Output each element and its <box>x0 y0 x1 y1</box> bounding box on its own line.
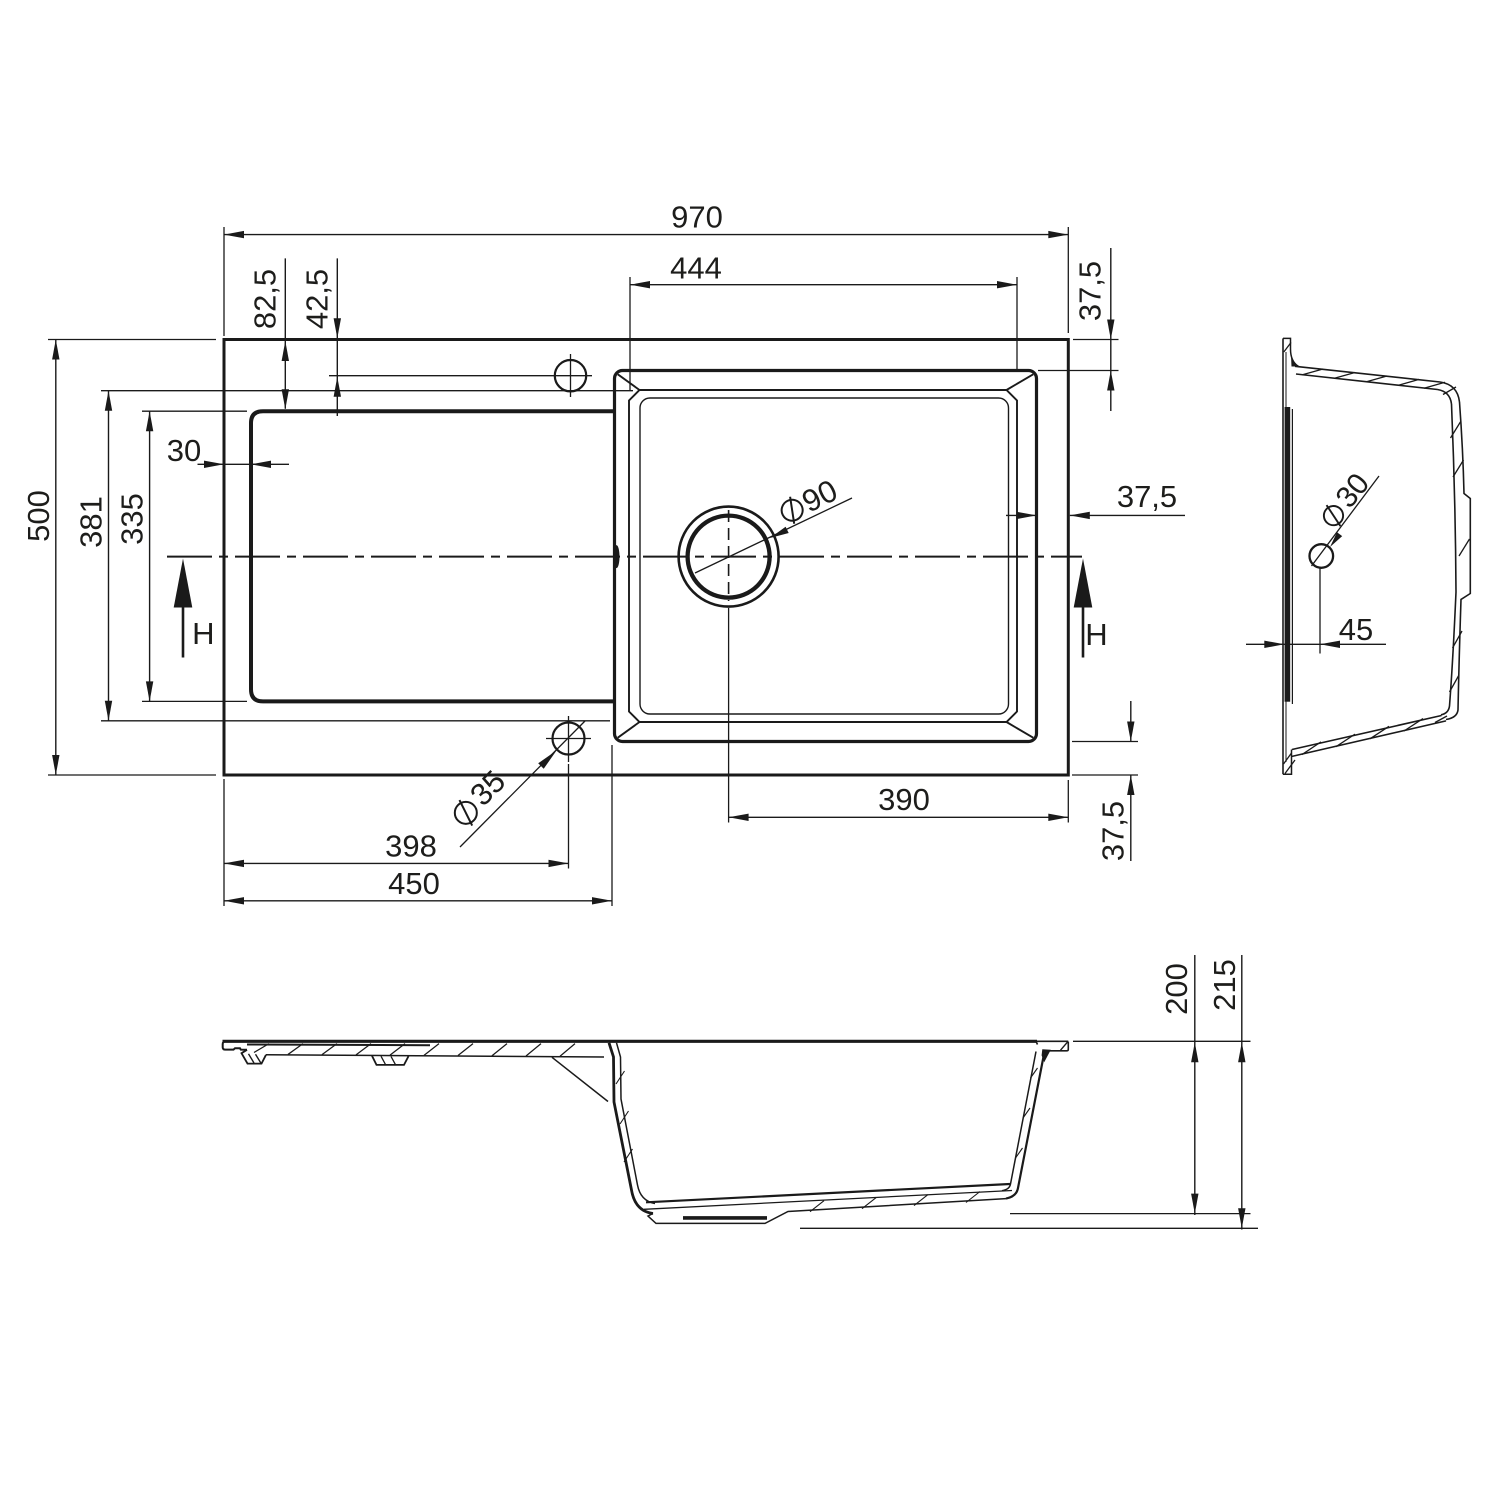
svg-text:215: 215 <box>1207 959 1242 1011</box>
svg-text:335: 335 <box>115 493 150 545</box>
svg-text:37,5: 37,5 <box>1073 261 1108 321</box>
svg-text:970: 970 <box>671 200 723 235</box>
svg-text:82,5: 82,5 <box>248 269 283 329</box>
svg-text:398: 398 <box>385 829 437 864</box>
svg-text:H: H <box>1085 617 1107 652</box>
svg-text:H: H <box>192 616 214 651</box>
svg-text:37,5: 37,5 <box>1096 801 1131 861</box>
svg-text:37,5: 37,5 <box>1117 479 1177 514</box>
svg-text:45: 45 <box>1339 612 1373 647</box>
svg-text:444: 444 <box>670 251 722 286</box>
svg-text:381: 381 <box>74 496 109 548</box>
svg-text:30: 30 <box>167 433 201 468</box>
svg-text:500: 500 <box>21 490 56 542</box>
svg-text:450: 450 <box>388 866 440 901</box>
svg-text:42,5: 42,5 <box>300 269 335 329</box>
svg-text:200: 200 <box>1159 963 1194 1015</box>
svg-text:390: 390 <box>878 782 930 817</box>
